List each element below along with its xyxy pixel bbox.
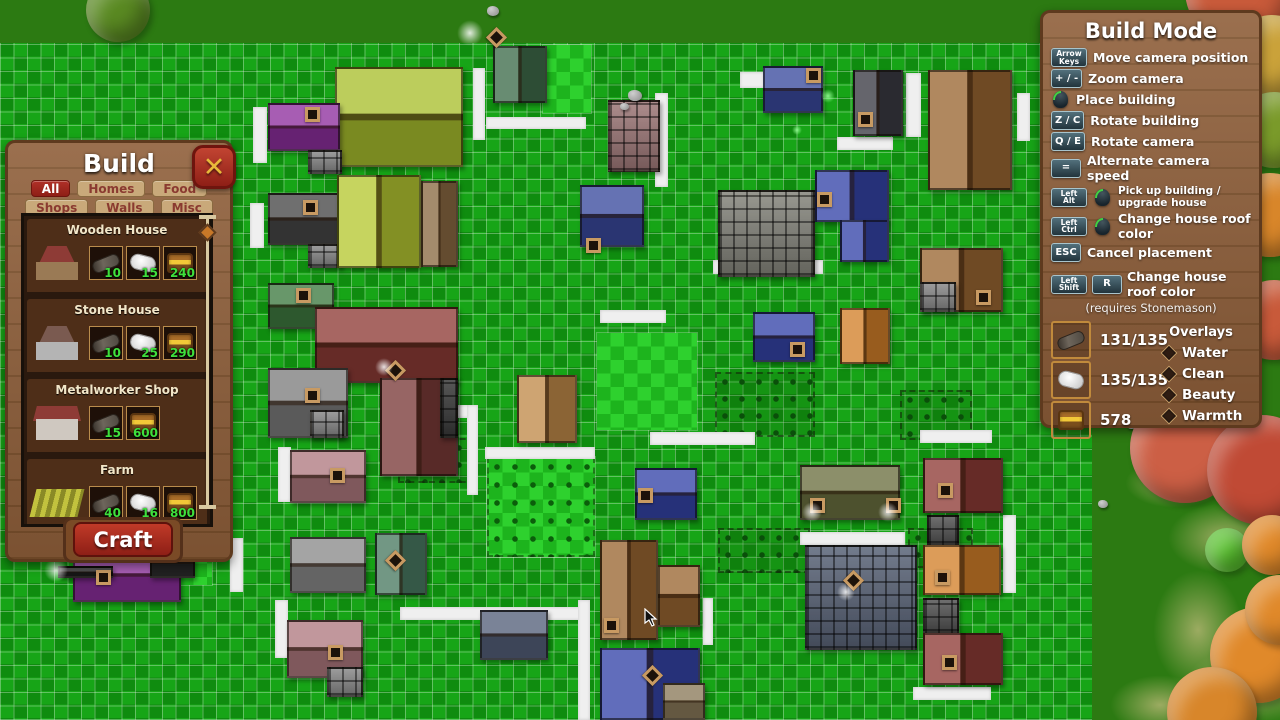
build-item-name: Farm	[27, 459, 207, 479]
chimney	[790, 342, 805, 357]
shortcut-list: Arrow KeysMove camera position+ / -Zoom …	[1051, 48, 1251, 262]
crop-field[interactable]	[543, 45, 591, 113]
chimney	[858, 112, 873, 127]
overlay-option-beauty[interactable]: Beauty	[1163, 387, 1249, 403]
checkbox-diamond-icon	[1161, 345, 1178, 362]
building[interactable]	[290, 537, 366, 593]
building[interactable]	[337, 175, 421, 268]
building[interactable]	[480, 610, 548, 660]
build-item-card[interactable]: Metalworker Shop15600	[27, 379, 207, 456]
resource-box	[1051, 321, 1091, 359]
build-item-body: 1015240	[27, 239, 207, 292]
key-left-alt[interactable]: Left Alt	[1051, 188, 1087, 207]
cost-gold: 240	[163, 246, 197, 280]
chimney	[817, 192, 832, 207]
chimney-smoke	[375, 358, 393, 376]
cost-gold: 800	[163, 486, 197, 520]
shortcut-label: Change house roof color	[1118, 211, 1251, 241]
roof-color-shortcut-row: Left ShiftRChange house roof color	[1051, 269, 1251, 299]
sparkle-glow	[792, 125, 802, 135]
chimney	[96, 570, 111, 585]
road-segment	[253, 107, 267, 163]
building[interactable]	[421, 181, 458, 267]
resource-box	[1051, 361, 1091, 399]
shortcut-row: Left CtrlChange house roof color	[1051, 211, 1251, 241]
road-segment	[250, 203, 264, 248]
roof-color-requirement: (requires Stonemason)	[1051, 301, 1251, 315]
wooden-house-thumbnail	[30, 241, 84, 285]
tiled-annex[interactable]	[308, 150, 342, 174]
road-segment	[837, 137, 893, 150]
tiled-annex[interactable]	[718, 190, 815, 277]
road-segment	[906, 73, 921, 137]
shortcut-label: Rotate camera	[1091, 134, 1194, 149]
thumb-body	[36, 262, 78, 280]
cost-gold: 290	[163, 326, 197, 360]
chimney	[305, 107, 320, 122]
chimney	[938, 483, 953, 498]
build-item-card[interactable]: Stone House1025290	[27, 299, 207, 376]
tiled-annex[interactable]	[310, 410, 344, 438]
cost-gold: 600	[126, 406, 160, 440]
stone-icon	[1056, 369, 1085, 391]
road-segment	[1003, 515, 1016, 593]
build-item-card[interactable]: Wooden House1015240	[27, 219, 207, 296]
chimney-smoke	[802, 502, 822, 522]
cost-wood: 15	[89, 406, 123, 440]
rock	[487, 6, 499, 16]
key-left-shift[interactable]: Left Shift	[1051, 275, 1087, 294]
resource-box	[1051, 401, 1091, 439]
cost-wood: 40	[89, 486, 123, 520]
cost-value: 240	[170, 266, 195, 280]
build-mode-panel: Build Mode Arrow KeysMove camera positio…	[1040, 10, 1262, 428]
building[interactable]	[840, 220, 889, 262]
shortcut-row: Place building	[1051, 90, 1251, 109]
overlay-option-clean[interactable]: Clean	[1163, 366, 1249, 382]
tiled-annex[interactable]	[440, 378, 458, 438]
build-panel: ✕ Build AllHomesFood ShopsWallsMisc Wood…	[5, 140, 233, 562]
chimney	[330, 468, 345, 483]
chimney	[806, 68, 821, 83]
road-segment	[473, 68, 485, 140]
metalworker-shop-thumbnail	[30, 401, 84, 445]
cost-wood: 10	[89, 246, 123, 280]
game-screen: ✕ Build AllHomesFood ShopsWallsMisc Wood…	[0, 0, 1280, 720]
cost-stone: 25	[126, 326, 160, 360]
cost-value: 10	[104, 346, 121, 360]
rock	[1098, 500, 1108, 508]
chimney	[976, 290, 991, 305]
chimney	[942, 655, 957, 670]
wood-icon	[1056, 329, 1087, 352]
cost-value: 15	[141, 266, 158, 280]
shortcut-row: ESCCancel placement	[1051, 243, 1251, 262]
building[interactable]	[290, 450, 366, 503]
overlay-label: Warmth	[1182, 408, 1242, 424]
overlay-option-water[interactable]: Water	[1163, 345, 1249, 361]
tiled-annex[interactable]	[608, 100, 660, 172]
overlay-option-warmth[interactable]: Warmth	[1163, 408, 1249, 424]
sparkle-glow	[821, 89, 835, 103]
shortcut-label: Place building	[1076, 92, 1176, 107]
garden-plot[interactable]	[718, 528, 810, 573]
shortcut-row: + / -Zoom camera	[1051, 69, 1251, 88]
thumb-body	[36, 419, 78, 440]
gold-icon	[1058, 410, 1084, 430]
chimney	[935, 570, 950, 585]
road-segment	[486, 117, 586, 129]
key-arrow-keys[interactable]: Arrow Keys	[1051, 48, 1087, 67]
thumb-body	[36, 342, 78, 360]
build-mode-title: Build Mode	[1051, 19, 1251, 43]
scrollbar-track[interactable]	[206, 218, 209, 506]
tree	[86, 0, 150, 42]
shortcut-row: Q / ERotate camera	[1051, 132, 1251, 151]
tab-homes[interactable]: Homes	[77, 180, 145, 197]
tiled-annex[interactable]	[805, 545, 917, 650]
overlays-title: Overlays	[1153, 325, 1249, 340]
shortcut-label: Rotate building	[1090, 113, 1199, 128]
garden-plot[interactable]	[715, 372, 815, 437]
key-q-e[interactable]: Q / E	[1051, 132, 1085, 151]
cost-value: 600	[133, 426, 158, 440]
road-segment	[1017, 93, 1030, 141]
garden-field[interactable]	[487, 457, 595, 557]
chimney	[638, 488, 653, 503]
building[interactable]	[840, 308, 890, 364]
rock	[628, 90, 642, 101]
cost-value: 25	[141, 346, 158, 360]
road-segment	[920, 430, 992, 443]
left-click-mouse-icon	[1053, 91, 1068, 108]
build-item-body: 1025290	[27, 319, 207, 372]
tiled-annex[interactable]	[920, 282, 956, 312]
shortcut-label: Pick up building / upgrade house	[1118, 185, 1251, 209]
build-item-name: Metalworker Shop	[27, 379, 207, 399]
chimney-smoke	[457, 20, 483, 46]
shortcut-row: Left AltPick up building / upgrade house	[1051, 185, 1251, 209]
shortcut-label: Zoom camera	[1088, 71, 1184, 86]
building[interactable]	[923, 633, 1003, 685]
chimney	[305, 388, 320, 403]
tiled-annex[interactable]	[927, 515, 959, 545]
key--[interactable]: =	[1051, 159, 1081, 178]
build-item-body: 15600	[27, 399, 207, 452]
key-z-c[interactable]: Z / C	[1051, 111, 1084, 130]
checkbox-diamond-icon	[1161, 366, 1178, 383]
resource-value: 578	[1100, 411, 1131, 429]
chimney	[303, 200, 318, 215]
checkbox-diamond-icon	[1161, 408, 1178, 425]
cost-wood: 10	[89, 326, 123, 360]
chimney-smoke	[878, 502, 898, 522]
road-segment	[650, 432, 755, 445]
road-segment	[800, 532, 905, 545]
chimney	[328, 645, 343, 660]
road-segment	[467, 405, 478, 495]
building[interactable]	[493, 46, 547, 103]
shortcut-row: =Alternate camera speed	[1051, 153, 1251, 183]
tiled-annex[interactable]	[327, 667, 363, 697]
tab-all[interactable]: All	[31, 180, 71, 197]
shortcut-row: Z / CRotate building	[1051, 111, 1251, 130]
shortcut-label: Move camera position	[1093, 50, 1248, 65]
shortcut-row: Arrow KeysMove camera position	[1051, 48, 1251, 67]
overlay-label: Clean	[1182, 366, 1224, 382]
building[interactable]	[928, 70, 1012, 190]
left-click-mouse-icon	[1095, 189, 1110, 206]
chimney	[296, 288, 311, 303]
farm-rows	[30, 489, 85, 517]
cost-value: 15	[104, 426, 121, 440]
checkbox-diamond-icon	[1161, 387, 1178, 404]
road-segment	[485, 447, 595, 459]
overlay-label: Water	[1182, 345, 1228, 361]
key--[interactable]: + / -	[1051, 69, 1082, 88]
cost-stone: 15	[126, 246, 160, 280]
building[interactable]	[517, 375, 577, 443]
cost-value: 290	[170, 346, 195, 360]
shortcut-label: Alternate camera speed	[1087, 153, 1251, 183]
stone-house-thumbnail	[30, 321, 84, 365]
crop-field[interactable]	[597, 333, 697, 430]
rock	[620, 103, 629, 110]
left-click-mouse-icon	[1095, 218, 1110, 235]
cost-stone: 16	[126, 486, 160, 520]
mouse-cursor	[643, 608, 659, 628]
building[interactable]	[753, 312, 815, 362]
shortcut-label: Cancel placement	[1087, 245, 1212, 260]
road-segment	[578, 600, 590, 720]
cost-value: 10	[104, 266, 121, 280]
building[interactable]	[268, 103, 340, 151]
chimney-smoke	[837, 583, 855, 601]
road-segment	[913, 687, 991, 700]
overlays-group: Overlays WaterCleanBeautyWarmth	[1153, 325, 1249, 429]
overlay-label: Beauty	[1182, 387, 1235, 403]
chimney	[604, 618, 619, 633]
building[interactable]	[923, 458, 1003, 513]
key-r[interactable]: R	[1092, 275, 1122, 294]
building[interactable]	[663, 683, 705, 720]
resources-area: 131/135135/135578 Overlays WaterCleanBea…	[1051, 321, 1251, 441]
chimney	[586, 238, 601, 253]
roof-shortcut-label: Change house roof color	[1127, 269, 1251, 299]
tiled-annex[interactable]	[923, 598, 959, 633]
close-icon[interactable]: ✕	[192, 145, 236, 189]
craft-button[interactable]: Craft	[73, 522, 173, 557]
road-segment	[600, 310, 666, 323]
build-item-name: Stone House	[27, 299, 207, 319]
key-esc[interactable]: ESC	[1051, 243, 1081, 262]
key-left-ctrl[interactable]: Left Ctrl	[1051, 217, 1087, 236]
build-item-name: Wooden House	[27, 219, 207, 239]
building[interactable]	[335, 67, 463, 167]
building[interactable]	[658, 565, 700, 627]
road-segment	[703, 598, 713, 645]
build-item-list[interactable]: Wooden House1015240Stone House1025290Met…	[21, 213, 213, 527]
